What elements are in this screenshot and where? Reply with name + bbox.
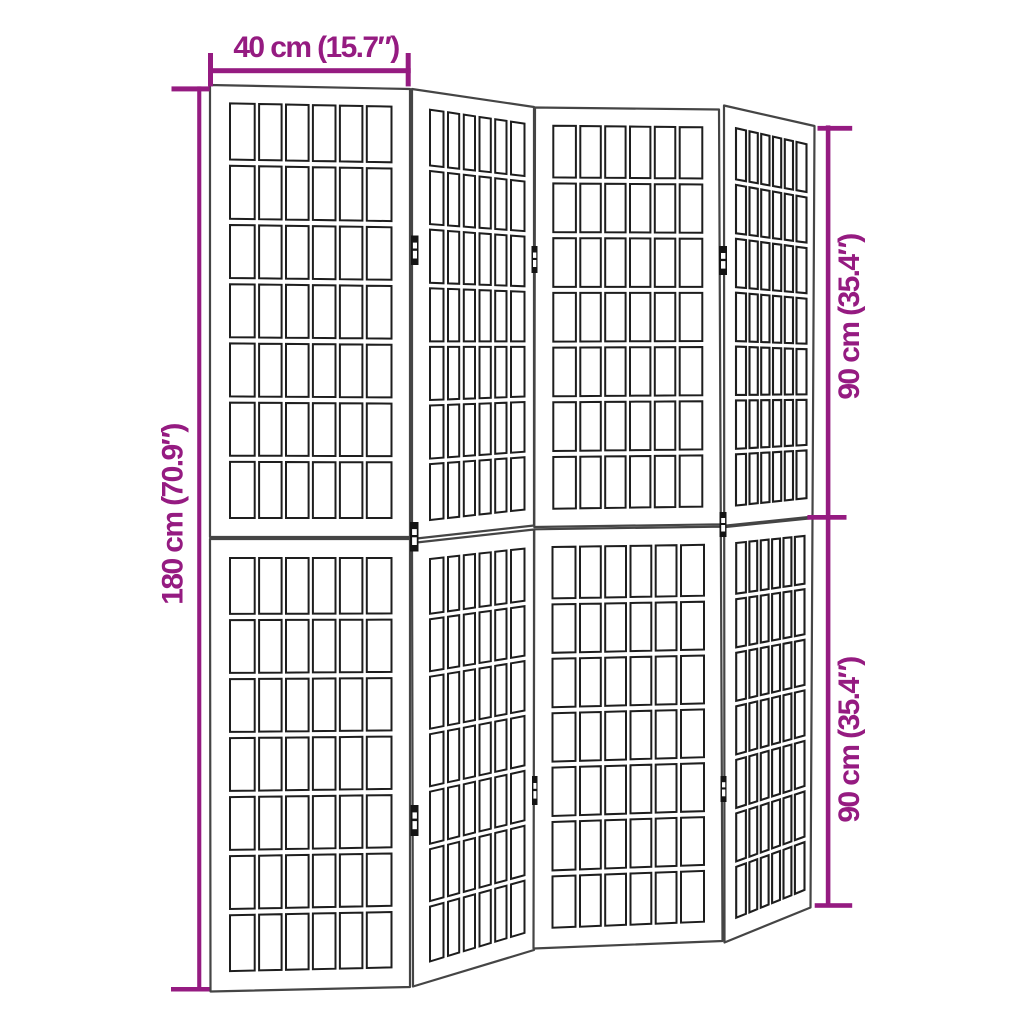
svg-text:180 cm (70.9″): 180 cm (70.9″) bbox=[157, 424, 190, 605]
svg-text:90 cm (35.4″): 90 cm (35.4″) bbox=[833, 657, 866, 823]
svg-text:90 cm (35.4″): 90 cm (35.4″) bbox=[833, 234, 866, 400]
svg-text:40 cm (15.7″): 40 cm (15.7″) bbox=[233, 31, 399, 64]
